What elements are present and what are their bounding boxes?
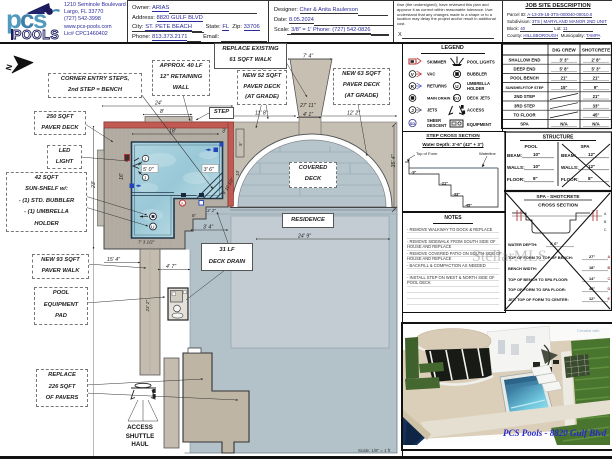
svg-text:STRUCTURE: STRUCTURE bbox=[543, 135, 574, 141]
svg-text:3RD STEP: 3RD STEP bbox=[514, 103, 535, 108]
svg-text:-9": -9" bbox=[411, 170, 417, 175]
svg-text:MAIN DRAIN: MAIN DRAIN bbox=[427, 96, 451, 101]
svg-text:FLOOR:: FLOOR: bbox=[507, 177, 525, 182]
svg-text:21": 21" bbox=[561, 76, 568, 81]
svg-text:U: U bbox=[455, 84, 459, 89]
svg-text:DESCENT: DESCENT bbox=[427, 123, 447, 128]
svg-text:Scale: 1/8" = 1 ft: Scale: 1/8" = 1 ft bbox=[358, 448, 391, 453]
svg-text:9": 9" bbox=[594, 85, 598, 90]
svg-text:JETS: JETS bbox=[427, 108, 438, 113]
svg-text:8': 8' bbox=[192, 213, 196, 218]
svg-text:TO FLOOR: TO FLOOR bbox=[513, 113, 536, 118]
svg-text:14": 14" bbox=[589, 276, 595, 281]
svg-text:BEAM:: BEAM: bbox=[507, 153, 523, 158]
svg-text:7' 4": 7' 4" bbox=[303, 54, 314, 60]
svg-text:D: D bbox=[608, 287, 611, 291]
svg-text:3' 3": 3' 3" bbox=[559, 57, 568, 62]
svg-text:15": 15" bbox=[561, 85, 568, 90]
svg-text:5' 0": 5' 0" bbox=[143, 167, 155, 173]
svg-text:DECK JETS: DECK JETS bbox=[467, 96, 490, 101]
svg-text:JET: TOP OF FORM TO CENTER:: JET: TOP OF FORM TO CENTER: bbox=[508, 297, 569, 302]
svg-text:POOL BENCH: POOL BENCH bbox=[510, 76, 539, 81]
svg-text:4' 1": 4' 1" bbox=[303, 112, 314, 118]
svg-text:3' 2": 3' 2" bbox=[207, 208, 216, 213]
svg-text:11' 8": 11' 8" bbox=[255, 111, 269, 117]
svg-text:BUBBLER: BUBBLER bbox=[467, 72, 487, 77]
svg-text:33": 33" bbox=[593, 103, 600, 108]
svg-text:N: N bbox=[4, 63, 14, 71]
svg-text:BENCH WIDTH:: BENCH WIDTH: bbox=[508, 266, 537, 271]
svg-text:N/A: N/A bbox=[592, 122, 599, 127]
svg-text:WALLS:: WALLS: bbox=[507, 165, 525, 170]
svg-text:45": 45" bbox=[593, 113, 600, 118]
svg-text:5': 5' bbox=[238, 142, 243, 146]
svg-text:24': 24' bbox=[154, 101, 163, 107]
svg-text:-45": -45" bbox=[465, 203, 473, 208]
svg-text:12' 2": 12' 2" bbox=[347, 111, 361, 117]
svg-text:CROSS SECTION: CROSS SECTION bbox=[538, 203, 578, 209]
svg-text:Top of Form: Top of Form bbox=[416, 151, 438, 156]
svg-text:ACCESS: ACCESS bbox=[467, 108, 484, 113]
svg-text:-21": -21" bbox=[441, 181, 449, 186]
svg-text:3' 4": 3' 4" bbox=[203, 225, 214, 231]
svg-text:A: A bbox=[181, 201, 184, 206]
svg-text:2ND STEP: 2ND STEP bbox=[514, 94, 535, 99]
svg-text:U: U bbox=[151, 225, 155, 231]
svg-text:WALLS:: WALLS: bbox=[561, 165, 579, 170]
svg-text:WATER DEPTH:: WATER DEPTH: bbox=[508, 242, 537, 247]
svg-text:21": 21" bbox=[593, 76, 600, 81]
svg-text:A: A bbox=[604, 212, 607, 216]
svg-text:5' 8": 5' 8" bbox=[559, 67, 568, 72]
svg-text:DJ: DJ bbox=[454, 96, 459, 101]
svg-text:18': 18' bbox=[169, 129, 177, 135]
svg-text:RETURNS: RETURNS bbox=[427, 84, 447, 89]
svg-text:POOL: POOL bbox=[524, 144, 537, 149]
svg-text:23': 23' bbox=[91, 180, 97, 189]
svg-text:-33": -33" bbox=[453, 192, 461, 197]
svg-text:POOL LIGHTS: POOL LIGHTS bbox=[467, 60, 495, 65]
svg-text:2' 8": 2' 8" bbox=[591, 57, 600, 62]
svg-text:21": 21" bbox=[593, 94, 600, 99]
svg-text:J: J bbox=[411, 108, 414, 113]
svg-text:SUNSHELF/TOP STEP: SUNSHELF/TOP STEP bbox=[505, 86, 544, 90]
svg-text:POOL DECK: POOL DECK bbox=[407, 280, 431, 285]
svg-text:Waterline: Waterline bbox=[479, 151, 497, 156]
svg-text:8": 8" bbox=[588, 176, 593, 181]
svg-text:DEEP END: DEEP END bbox=[514, 67, 536, 72]
svg-text:E: E bbox=[608, 297, 611, 301]
svg-text:15' 4": 15' 4" bbox=[107, 257, 121, 263]
svg-text:POOLS: POOLS bbox=[13, 28, 59, 41]
svg-text:C: C bbox=[608, 277, 611, 281]
svg-text:10': 10' bbox=[235, 170, 240, 176]
svg-text:N/A: N/A bbox=[560, 122, 567, 127]
svg-text:SHOTCRETE: SHOTCRETE bbox=[582, 48, 610, 53]
svg-text:SHALLOW END: SHALLOW END bbox=[509, 57, 541, 62]
svg-text:35' 4": 35' 4" bbox=[391, 153, 397, 167]
svg-text:24' 9": 24' 9" bbox=[297, 234, 312, 240]
svg-text:Created with: Created with bbox=[577, 328, 599, 333]
svg-text:HOUSE AND REPLACE: HOUSE AND REPLACE bbox=[407, 244, 452, 249]
svg-text:PCS Pools - 8820 Gulf Blvd: PCS Pools - 8820 Gulf Blvd bbox=[503, 428, 607, 438]
svg-text:SD: SD bbox=[410, 122, 416, 126]
svg-text:B: B bbox=[608, 266, 611, 270]
svg-text:VAC: VAC bbox=[427, 72, 435, 77]
svg-text:12": 12" bbox=[588, 152, 595, 157]
svg-text:SPA - SHOTCRETE: SPA - SHOTCRETE bbox=[536, 194, 580, 200]
svg-text:HOUSE AND REPLACE: HOUSE AND REPLACE bbox=[407, 256, 452, 261]
svg-text:4' 7": 4' 7" bbox=[166, 264, 177, 270]
svg-text:J: J bbox=[144, 157, 146, 162]
svg-text:23' 2": 23' 2" bbox=[145, 300, 150, 313]
svg-text:3' 6": 3' 6" bbox=[204, 167, 216, 173]
svg-text:10": 10" bbox=[533, 164, 540, 169]
svg-text:B: B bbox=[604, 220, 607, 224]
svg-text:TOP OF FORM TO SPA FLOOR:: TOP OF FORM TO SPA FLOOR: bbox=[508, 287, 566, 292]
svg-text:7' 3 1/2": 7' 3 1/2" bbox=[138, 240, 155, 245]
svg-text:16': 16' bbox=[119, 172, 125, 180]
svg-text:TOP OF BENCH TO SPA FLOOR:: TOP OF BENCH TO SPA FLOOR: bbox=[508, 277, 568, 282]
svg-text:5' 3": 5' 3" bbox=[591, 67, 600, 72]
svg-text:SKIMMER: SKIMMER bbox=[427, 60, 446, 65]
svg-text:J: J bbox=[144, 176, 146, 181]
svg-text:8": 8" bbox=[533, 176, 538, 181]
svg-text:SPA: SPA bbox=[520, 122, 529, 127]
svg-text:SPA: SPA bbox=[580, 144, 590, 149]
svg-text:R: R bbox=[411, 84, 415, 89]
svg-text:12": 12" bbox=[589, 296, 595, 301]
svg-text:HOLDER: HOLDER bbox=[467, 86, 484, 91]
svg-text:DIG CREW: DIG CREW bbox=[552, 48, 576, 53]
svg-text:V: V bbox=[411, 72, 415, 77]
svg-text:EQUIPMENT: EQUIPMENT bbox=[467, 122, 492, 127]
svg-text:10": 10" bbox=[533, 152, 540, 157]
svg-text:8': 8' bbox=[160, 109, 165, 115]
svg-text:C: C bbox=[604, 228, 607, 232]
svg-text:27' 11": 27' 11" bbox=[299, 103, 317, 109]
svg-text:- REMOVE WALKWAY TO DOCK & REP: - REMOVE WALKWAY TO DOCK & REPLACE bbox=[407, 227, 493, 232]
